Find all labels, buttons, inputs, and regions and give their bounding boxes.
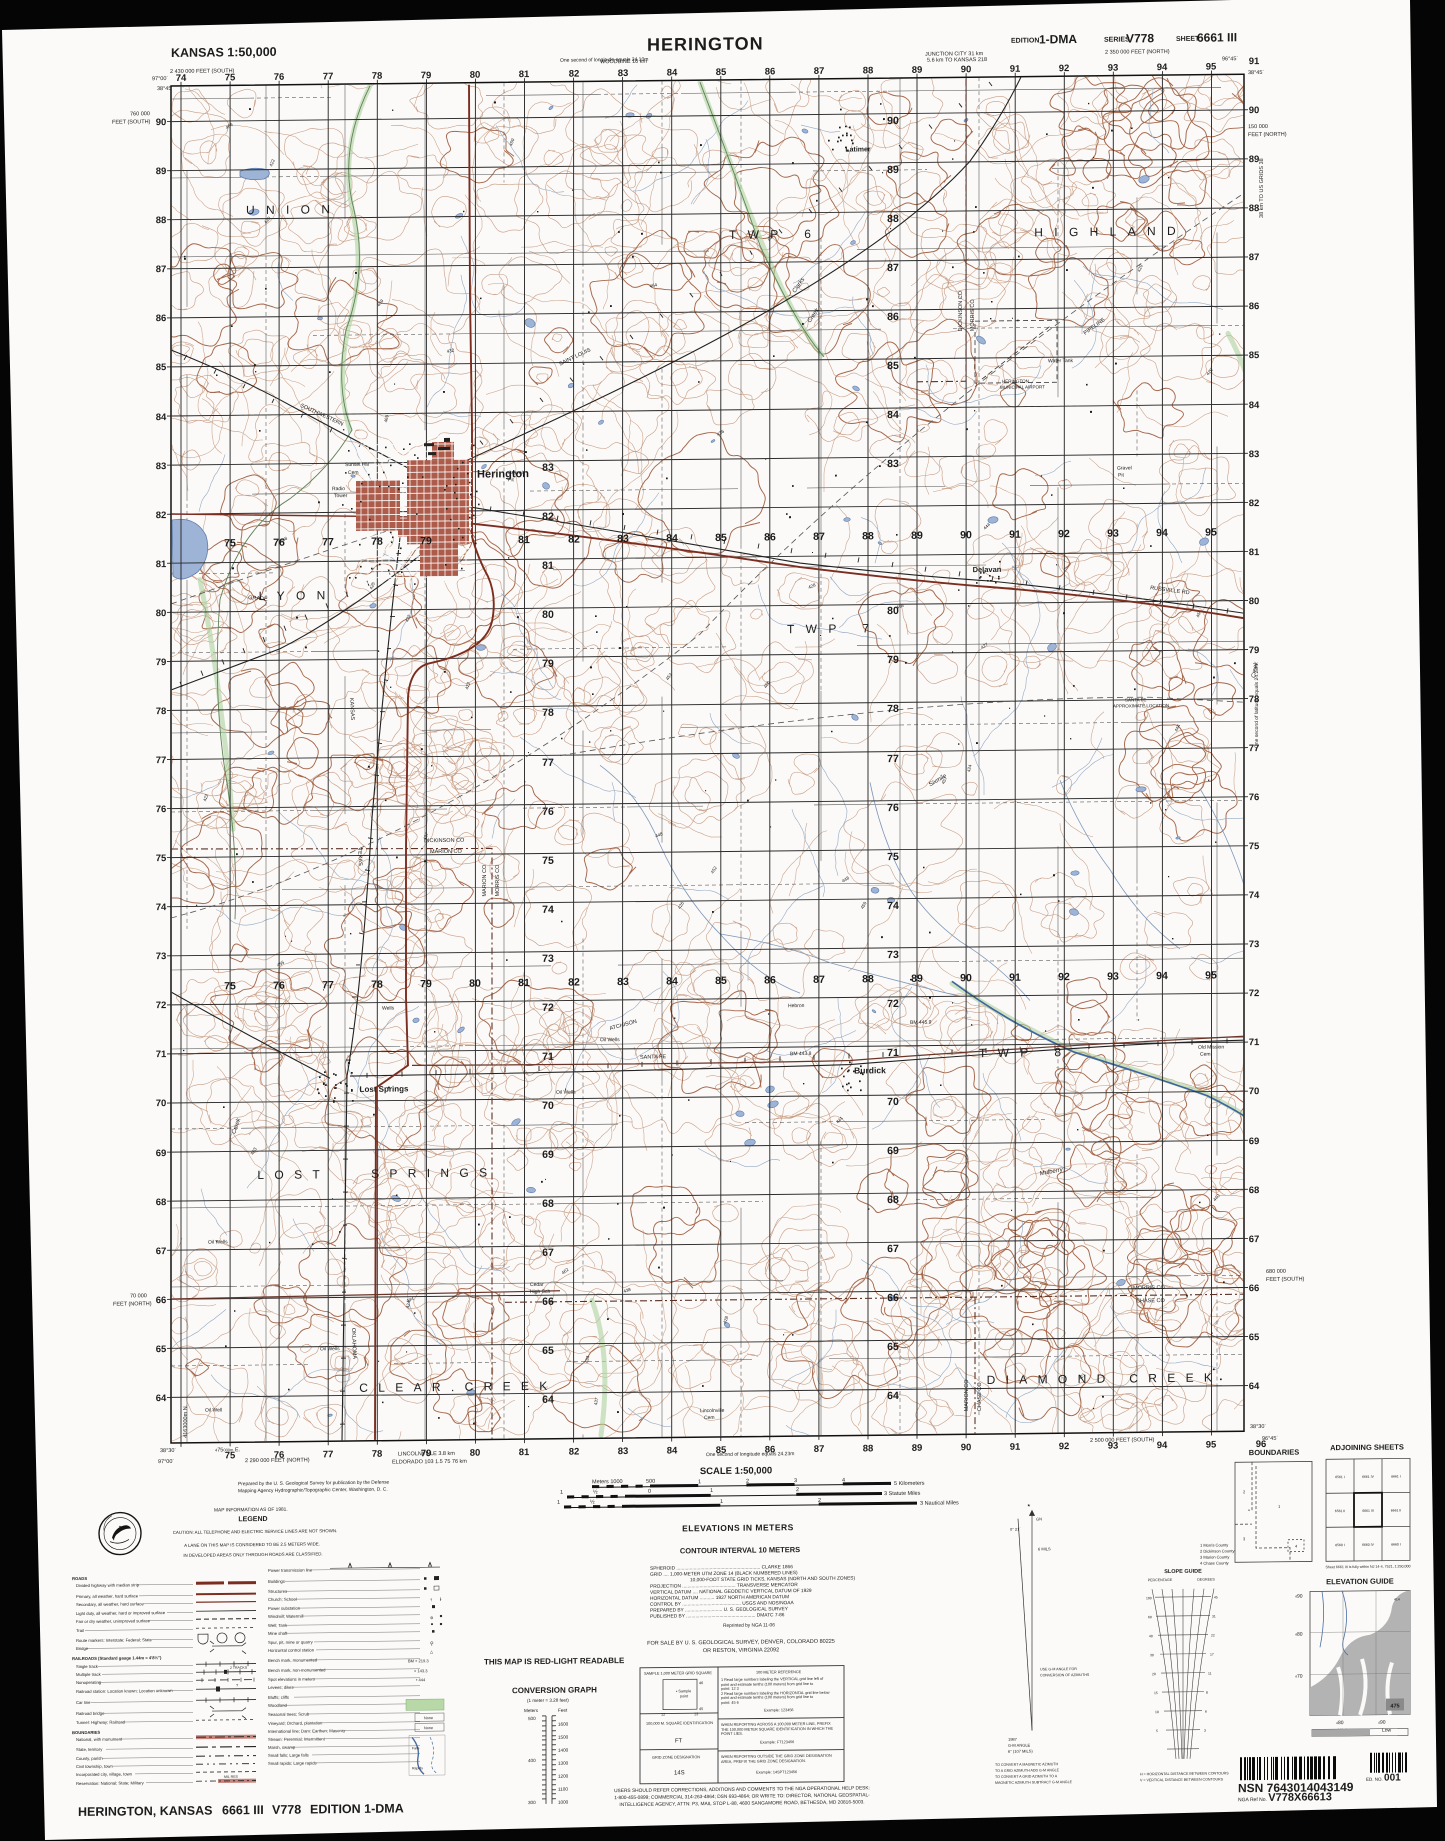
- svg-text:93: 93: [1107, 971, 1119, 983]
- svg-text:72: 72: [156, 1000, 167, 1011]
- svg-text:71: 71: [156, 1049, 167, 1060]
- svg-text:ROADS: ROADS: [72, 1576, 87, 1581]
- svg-text:8: 8: [1206, 1691, 1208, 1695]
- svg-text:91: 91: [1009, 972, 1021, 984]
- svg-text:96°45´: 96°45´: [1262, 1436, 1278, 1442]
- svg-text:APPROXIMATE LOCATION: APPROXIMATE LOCATION: [1113, 703, 1169, 709]
- svg-text:77: 77: [323, 71, 334, 82]
- svg-text:15: 15: [1154, 1691, 1158, 1695]
- svg-text:80: 80: [1249, 596, 1260, 607]
- svg-text:6661 I: 6661 I: [1391, 1474, 1400, 1478]
- svg-text:Levees; dikes: Levees; dikes: [268, 1685, 294, 1690]
- svg-text:90: 90: [887, 115, 899, 127]
- svg-text:⚲: ⚲: [430, 1641, 434, 1647]
- svg-text:Pit: Pit: [508, 477, 514, 483]
- svg-text:SCALE 1:50,000: SCALE 1:50,000: [700, 1465, 772, 1477]
- svg-text:88: 88: [863, 1443, 874, 1454]
- svg-text:76: 76: [1249, 792, 1260, 803]
- svg-text:County, parish: County, parish: [76, 1756, 103, 1761]
- svg-text:38°45´: 38°45´: [1248, 70, 1264, 76]
- svg-text:Primary, all weather, hard sur: Primary, all weather, hard surface: [76, 1593, 139, 1599]
- svg-text:FT: FT: [675, 1738, 683, 1744]
- svg-text:1 Morris County: 1 Morris County: [1200, 1542, 1228, 1547]
- svg-text:87: 87: [814, 66, 825, 77]
- svg-text:High Sch: High Sch: [530, 1289, 551, 1295]
- svg-text:U N I O N: U N I O N: [246, 202, 334, 217]
- svg-text:69: 69: [542, 1149, 554, 1161]
- svg-text:86: 86: [764, 531, 776, 543]
- svg-text:89: 89: [912, 65, 923, 76]
- svg-text:Civil township, town: Civil township, town: [76, 1764, 113, 1769]
- svg-text:2 Dickinson County: 2 Dickinson County: [1200, 1548, 1234, 1553]
- svg-text:TO CONVERT A GRID AZIMUTH TO A: TO CONVERT A GRID AZIMUTH TO A: [995, 1774, 1058, 1779]
- svg-text:85: 85: [156, 362, 167, 373]
- svg-text:Oil Wells: Oil Wells: [208, 1239, 228, 1245]
- svg-text:DEGREES: DEGREES: [1197, 1578, 1215, 1582]
- svg-text:81: 81: [519, 69, 530, 80]
- svg-text:PERCENTAGE: PERCENTAGE: [1148, 1578, 1173, 1582]
- svg-text:Delavan: Delavan: [973, 565, 1002, 574]
- svg-text:75: 75: [887, 851, 899, 863]
- svg-text:30: 30: [1150, 1653, 1154, 1657]
- svg-text:DICKINSON CO: DICKINSON CO: [958, 290, 964, 331]
- svg-text:760 000: 760 000: [130, 111, 150, 117]
- svg-text:76: 76: [273, 537, 285, 549]
- svg-text:point: point: [680, 1694, 689, 1698]
- svg-text:D I A M O N D C R E E K: D I A M O N D C R E E K: [987, 1371, 1216, 1388]
- svg-text:Radio: Radio: [332, 486, 345, 492]
- svg-text:94: 94: [1156, 527, 1168, 539]
- svg-text:1300: 1300: [558, 1761, 569, 1766]
- svg-text:KANSAS: KANSAS: [348, 698, 355, 721]
- svg-text:10: 10: [1155, 1710, 1159, 1714]
- svg-text:67: 67: [1249, 1234, 1260, 1245]
- svg-text:96°45´: 96°45´: [1222, 56, 1238, 62]
- svg-text:1100: 1100: [558, 1787, 568, 1792]
- svg-text:2 290 000 FEET (NORTH): 2 290 000 FEET (NORTH): [245, 1457, 310, 1464]
- svg-text:86: 86: [764, 974, 776, 986]
- svg-text:85: 85: [887, 360, 899, 372]
- svg-text:100: 100: [1146, 1596, 1152, 1600]
- svg-text:International line; Dam: Earth: International line; Dam: Earthen; Masonr…: [268, 1728, 346, 1734]
- svg-text:KANSAS 1:50,000: KANSAS 1:50,000: [171, 45, 277, 60]
- svg-text:76: 76: [156, 804, 167, 815]
- svg-text:MIL RES: MIL RES: [224, 1775, 239, 1779]
- svg-text:79: 79: [542, 658, 554, 670]
- svg-text:One second of latitude equals: One second of latitude equals 24.23m: [1254, 664, 1260, 748]
- svg-text:Rapids: Rapids: [412, 1766, 423, 1770]
- svg-text:73: 73: [542, 953, 554, 965]
- svg-text:45: 45: [699, 1707, 703, 1711]
- svg-text:84: 84: [1249, 400, 1260, 411]
- svg-text:CHASE CO: CHASE CO: [977, 1382, 983, 1412]
- svg-text:60: 60: [1148, 1615, 1152, 1619]
- svg-text:Seasonal trees; Scrub: Seasonal trees; Scrub: [268, 1711, 310, 1716]
- svg-text:BOUNDARIES: BOUNDARIES: [72, 1730, 100, 1735]
- svg-text:69: 69: [1249, 1136, 1260, 1147]
- svg-text:L Y O N: L Y O N: [259, 588, 330, 603]
- svg-text:83: 83: [887, 458, 899, 470]
- svg-text:88: 88: [1249, 203, 1260, 214]
- svg-text:Church; School: Church; School: [268, 1597, 297, 1602]
- svg-text:91: 91: [1009, 529, 1021, 541]
- svg-text:MARION CO: MARION CO: [482, 864, 488, 897]
- svg-text:150 000: 150 000: [1248, 124, 1268, 130]
- svg-text:65: 65: [887, 1341, 899, 1353]
- svg-text:(1 meter = 3.28 feet): (1 meter = 3.28 feet): [527, 1698, 569, 1703]
- svg-text:Divided highway with median st: Divided highway with median strip: [76, 1582, 140, 1588]
- svg-text:★: ★: [119, 1525, 122, 1529]
- svg-text:80: 80: [470, 70, 481, 81]
- svg-text:79: 79: [156, 657, 167, 668]
- svg-text:4 Chase County: 4 Chase County: [1200, 1560, 1229, 1565]
- svg-text:Multiple track: Multiple track: [76, 1672, 102, 1677]
- svg-text:84: 84: [156, 412, 167, 423]
- svg-text:MORRIS CO: MORRIS CO: [1133, 1285, 1165, 1291]
- svg-text:75: 75: [224, 980, 236, 992]
- svg-text:77: 77: [322, 979, 334, 991]
- svg-text:Single track: Single track: [76, 1664, 99, 1669]
- svg-text:Light duty, all weather, hard: Light duty, all weather, hard or improve…: [76, 1610, 166, 1616]
- svg-text:1-DMA: 1-DMA: [1039, 32, 1077, 46]
- svg-text:84: 84: [666, 532, 678, 544]
- svg-text:83: 83: [542, 462, 554, 474]
- svg-text:89: 89: [912, 1443, 923, 1454]
- svg-text:480: 480: [1336, 1720, 1344, 1726]
- svg-text:• Sample: • Sample: [676, 1689, 691, 1693]
- svg-text:FEET (NORTH): FEET (NORTH): [113, 1301, 152, 1307]
- svg-text:1200: 1200: [558, 1774, 569, 1779]
- svg-text:Reprinted by NGA 11-06: Reprinted by NGA 11-06: [723, 1622, 775, 1629]
- svg-text:84: 84: [667, 1445, 678, 1456]
- svg-text:73: 73: [1249, 939, 1260, 950]
- svg-text:38°45´: 38°45´: [157, 86, 173, 92]
- svg-text:ADJOINING SHEETS: ADJOINING SHEETS: [1330, 1442, 1404, 1452]
- svg-text:TO CONVERT A MAGNETIC AZIMUTH: TO CONVERT A MAGNETIC AZIMUTH: [995, 1762, 1059, 1767]
- svg-text:★: ★: [1027, 1503, 1031, 1508]
- svg-text:6 MILS: 6 MILS: [1038, 1546, 1051, 1551]
- svg-text:3 Nautical Miles: 3 Nautical Miles: [920, 1500, 959, 1506]
- svg-text:71: 71: [887, 1047, 899, 1059]
- svg-text:Structures: Structures: [268, 1589, 287, 1594]
- svg-text:2: 2: [746, 1479, 749, 1485]
- svg-text:87: 87: [813, 974, 825, 986]
- svg-text:0° 21´: 0° 21´: [1010, 1527, 1021, 1532]
- svg-text:Route markers: Interstate; Fed: Route markers: Interstate; Federal; Stat…: [76, 1637, 153, 1643]
- svg-text:490: 490: [1378, 1720, 1386, 1726]
- svg-text:90: 90: [961, 1442, 972, 1453]
- svg-text:†: †: [430, 1597, 432, 1602]
- svg-text:74: 74: [156, 902, 167, 913]
- svg-text:67: 67: [542, 1247, 554, 1259]
- svg-text:3 Statute Miles: 3 Statute Miles: [884, 1491, 921, 1497]
- svg-text:6561 I: 6561 I: [1335, 1475, 1344, 1479]
- svg-text:500: 500: [528, 1716, 536, 1721]
- svg-text:92: 92: [1058, 528, 1070, 540]
- svg-text:76: 76: [274, 72, 285, 83]
- svg-text:75: 75: [542, 855, 554, 867]
- svg-text:82: 82: [542, 511, 554, 523]
- svg-text:FEET (SOUTH): FEET (SOUTH): [1266, 1277, 1305, 1283]
- svg-text:72: 72: [1249, 988, 1260, 999]
- svg-text:L O S T S P R I N G S: L O S T S P R I N G S: [257, 1165, 490, 1182]
- svg-text:Spot elevations in meters: Spot elevations in meters: [268, 1676, 315, 1682]
- svg-text:82: 82: [156, 510, 167, 521]
- svg-text:Tunnel: Highway; Railroad: Tunnel: Highway; Railroad: [76, 1719, 126, 1725]
- svg-text:77: 77: [323, 1449, 334, 1460]
- svg-text:1600: 1600: [558, 1722, 569, 1727]
- svg-text:70: 70: [156, 1098, 167, 1109]
- svg-text:Water Tank: Water Tank: [1048, 358, 1074, 364]
- svg-text:5: 5: [1156, 1729, 1158, 1733]
- svg-text:40: 40: [1149, 1634, 1153, 1638]
- svg-text:EDITION 1-DMA: EDITION 1-DMA: [310, 1801, 404, 1816]
- svg-text:100,000 M. SQUARE IDENTIFICATI: 100,000 M. SQUARE IDENTIFICATION: [646, 1721, 713, 1726]
- svg-text:2 TRACKS: 2 TRACKS: [230, 1666, 248, 1670]
- svg-text:680 000: 680 000: [1266, 1269, 1286, 1275]
- svg-text:93: 93: [1108, 63, 1119, 74]
- svg-text:68: 68: [542, 1198, 554, 1210]
- svg-text:90: 90: [1249, 105, 1260, 116]
- svg-text:81: 81: [542, 560, 554, 572]
- svg-text:3: 3: [1204, 1729, 1206, 1733]
- svg-text:Oil Wells: Oil Wells: [600, 1037, 620, 1043]
- svg-text:CONVERSION GRAPH: CONVERSION GRAPH: [512, 1685, 597, 1695]
- svg-text:H I G H L A N D: H I G H L A N D: [1034, 224, 1179, 240]
- svg-text:92: 92: [1059, 63, 1070, 74]
- svg-text:90: 90: [961, 64, 972, 75]
- svg-text:T W P 6: T W P 6: [729, 227, 815, 242]
- svg-text:81: 81: [519, 1447, 530, 1458]
- svg-text:6° (107 MILS): 6° (107 MILS): [1008, 1749, 1033, 1754]
- svg-text:77: 77: [322, 536, 334, 548]
- svg-text:1: 1: [560, 1490, 563, 1496]
- svg-text:88: 88: [862, 530, 874, 542]
- svg-text:OKLAHOMA: OKLAHOMA: [350, 1328, 357, 1360]
- svg-text:BM 443.8: BM 443.8: [790, 1051, 812, 1057]
- svg-text:1: 1: [710, 1488, 713, 1494]
- svg-text:BM × 219.3: BM × 219.3: [408, 1658, 429, 1663]
- svg-text:½: ½: [593, 1488, 598, 1495]
- svg-text:84: 84: [666, 975, 678, 987]
- svg-text:Burdick: Burdick: [854, 1065, 886, 1075]
- svg-text:Power transmission line: Power transmission line: [268, 1567, 313, 1572]
- svg-text:66: 66: [887, 1292, 899, 1304]
- svg-text:5.6 km TO KANSAS 218: 5.6 km TO KANSAS 218: [927, 57, 987, 64]
- svg-text:87: 87: [813, 531, 825, 543]
- svg-text:LEGEND: LEGEND: [238, 1516, 267, 1523]
- svg-text:Mine shaft: Mine shaft: [268, 1631, 288, 1636]
- svg-text:81: 81: [518, 534, 530, 546]
- svg-text:Secondary, all weather, hard s: Secondary, all weather, hard surface: [76, 1601, 144, 1607]
- svg-text:Spur, pit, mine or quarry: Spur, pit, mine or quarry: [268, 1639, 314, 1645]
- svg-text:GN: GN: [1036, 1516, 1042, 1521]
- svg-text:73: 73: [887, 949, 899, 961]
- svg-text:None: None: [424, 1716, 433, 1720]
- svg-text:46: 46: [699, 1681, 703, 1685]
- svg-text:69: 69: [887, 1145, 899, 1157]
- svg-text:ELEVATION GUIDE: ELEVATION GUIDE: [1326, 1577, 1394, 1587]
- svg-text:Gravel: Gravel: [508, 470, 523, 476]
- svg-text:Sunset Hill: Sunset Hill: [345, 462, 369, 468]
- svg-text:Cem: Cem: [348, 470, 359, 476]
- svg-text:88: 88: [862, 973, 874, 985]
- svg-text:89: 89: [1249, 154, 1260, 165]
- svg-text:89: 89: [911, 530, 923, 542]
- svg-text:72: 72: [542, 1002, 554, 1014]
- svg-text:Lost Springs: Lost Springs: [360, 1084, 409, 1094]
- svg-text:66: 66: [156, 1295, 167, 1306]
- svg-text:65: 65: [542, 1345, 554, 1357]
- svg-text:95: 95: [1206, 1439, 1217, 1450]
- svg-text:64: 64: [1249, 1381, 1260, 1392]
- svg-text:80: 80: [470, 1448, 481, 1459]
- svg-text:One second of longitude equals: One second of longitude equals 24.23m: [706, 1451, 794, 1458]
- svg-text:91: 91: [1010, 1442, 1021, 1453]
- svg-text:0: 0: [648, 1489, 651, 1495]
- svg-text:BOUNDARIES: BOUNDARIES: [1249, 1448, 1299, 1458]
- svg-text:80: 80: [156, 608, 167, 619]
- svg-text:6: 6: [1205, 1710, 1207, 1714]
- svg-text:12: 12: [661, 1713, 665, 1717]
- svg-text:475: 475: [1390, 1703, 1399, 1709]
- svg-text:Trail: Trail: [76, 1628, 84, 1633]
- svg-text:75: 75: [156, 853, 167, 864]
- svg-text:87: 87: [887, 262, 899, 274]
- svg-text:83: 83: [617, 533, 629, 545]
- svg-text:HERINGTON, KANSAS: HERINGTON, KANSAS: [78, 1804, 213, 1819]
- svg-text:14S: 14S: [674, 1770, 685, 1776]
- svg-text:67: 67: [156, 1246, 167, 1257]
- svg-text:64: 64: [887, 1390, 899, 1402]
- svg-text:Example: 123456: Example: 123456: [764, 1708, 794, 1712]
- svg-text:Oil Well: Oil Well: [205, 1407, 222, 1413]
- svg-text:78: 78: [156, 706, 167, 717]
- svg-text:Oil Wells: Oil Wells: [320, 1346, 340, 1352]
- svg-text:CHASE CO: CHASE CO: [1136, 1298, 1165, 1304]
- svg-text:Vineyard; Orchard, plantation: Vineyard; Orchard, plantation: [268, 1720, 323, 1726]
- svg-text:69: 69: [156, 1148, 167, 1159]
- svg-text:70: 70: [542, 1100, 554, 1112]
- svg-text:EDITION: EDITION: [1011, 37, 1039, 44]
- svg-text:79: 79: [1249, 645, 1260, 656]
- svg-text:6661 III: 6661 III: [1362, 1509, 1373, 1513]
- svg-text:Power substation: Power substation: [268, 1606, 301, 1611]
- svg-text:CONTOUR INTERVAL 10 METERS: CONTOUR INTERVAL 10 METERS: [680, 1545, 800, 1555]
- svg-text:Well; Tank: Well; Tank: [268, 1623, 288, 1628]
- svg-text:Reservation: National; State;: Reservation: National; State; Military: [76, 1780, 145, 1786]
- svg-text:70: 70: [887, 1096, 899, 1108]
- svg-text:1500: 1500: [558, 1735, 569, 1740]
- svg-text:22: 22: [1211, 1634, 1215, 1638]
- svg-text:TO A GRID AZIMUTH ADD G-M ANGL: TO A GRID AZIMUTH ADD G-M ANGLE: [995, 1768, 1060, 1773]
- svg-text:MUNICIPAL AIRPORT: MUNICIPAL AIRPORT: [1000, 384, 1045, 389]
- svg-text:OR RESTON, VIRGINIA 22092: OR RESTON, VIRGINIA 22092: [703, 1647, 779, 1654]
- svg-text:Cem: Cem: [1200, 1052, 1211, 1058]
- svg-text:5 Kilometers: 5 Kilometers: [894, 1481, 925, 1487]
- svg-text:Car line: Car line: [76, 1700, 91, 1705]
- svg-text:64: 64: [156, 1393, 167, 1404]
- svg-text:Bluffs; cliffs: Bluffs; cliffs: [268, 1695, 289, 1700]
- svg-text:84: 84: [887, 409, 899, 421]
- svg-text:81: 81: [518, 977, 530, 989]
- svg-text:83: 83: [617, 976, 629, 988]
- svg-text:BM 445.9: BM 445.9: [910, 1020, 932, 1026]
- svg-text:FEET (NORTH): FEET (NORTH): [1248, 132, 1287, 138]
- svg-text:POINT LIES.: POINT LIES.: [721, 1732, 743, 1736]
- svg-text:89: 89: [887, 164, 899, 176]
- svg-text:Old Mission: Old Mission: [1198, 1044, 1224, 1050]
- svg-text:Oil Wells: Oil Wells: [556, 1090, 576, 1096]
- svg-text:6661 II: 6661 II: [1391, 1508, 1401, 1512]
- svg-text:point: 45 6: point: 45 6: [721, 1701, 739, 1705]
- svg-text:4163000m N.: 4163000m N.: [183, 1404, 189, 1438]
- svg-text:Incorporated city, village, to: Incorporated city, village, town: [76, 1771, 133, 1777]
- svg-text:Buildings: Buildings: [268, 1579, 285, 1584]
- svg-text:78: 78: [887, 703, 899, 715]
- svg-text:× 143.3: × 143.3: [414, 1668, 428, 1673]
- svg-text:SAMPLE 1,000 METER GRID SQUARE: SAMPLE 1,000 METER GRID SQUARE: [644, 1671, 712, 1676]
- svg-text:78: 78: [542, 707, 554, 719]
- svg-text:National, with monument: National, with monument: [76, 1737, 123, 1743]
- svg-text:86: 86: [1249, 301, 1260, 312]
- svg-text:Fair or dry weather, unimprove: Fair or dry weather, unimproved surface: [76, 1618, 151, 1624]
- svg-text:78: 78: [371, 979, 383, 991]
- svg-text:LINCOLNVILLE 3.8 km: LINCOLNVILLE 3.8 km: [398, 1451, 455, 1458]
- svg-text:ELEVATIONS IN METERS: ELEVATIONS IN METERS: [682, 1522, 794, 1533]
- svg-text:73: 73: [156, 951, 167, 962]
- svg-text:70: 70: [1249, 1086, 1260, 1097]
- svg-text:90: 90: [156, 117, 167, 128]
- svg-text:95: 95: [1205, 526, 1217, 538]
- svg-text:83: 83: [156, 461, 167, 472]
- svg-text:MORRIS CO: MORRIS CO: [495, 864, 501, 897]
- svg-text:86: 86: [887, 311, 899, 323]
- svg-text:89: 89: [156, 166, 167, 177]
- svg-text:79: 79: [420, 535, 432, 547]
- svg-text:None: None: [424, 1726, 433, 1730]
- svg-text:2: 2: [796, 1487, 799, 1493]
- svg-text:Cem: Cem: [704, 1415, 715, 1421]
- svg-text:Bridge: Bridge: [76, 1646, 89, 1651]
- svg-text:11: 11: [1208, 1672, 1212, 1676]
- svg-text:79: 79: [420, 978, 432, 990]
- svg-text:6561 II: 6561 II: [1335, 1509, 1345, 1513]
- svg-text:USE G-M ANGLE FOR: USE G-M ANGLE FOR: [1040, 1667, 1077, 1671]
- svg-text:4: 4: [842, 1478, 845, 1484]
- svg-text:38 km TO US GRIDS 38: 38 km TO US GRIDS 38: [1259, 158, 1265, 218]
- svg-text:Railroad bridge: Railroad bridge: [76, 1711, 105, 1716]
- svg-text:83: 83: [1249, 449, 1260, 460]
- svg-text:One second of longitude equals: One second of longitude equals 24.10m: [560, 57, 648, 64]
- svg-text:90: 90: [960, 972, 972, 984]
- svg-text:82: 82: [1249, 498, 1260, 509]
- svg-text:92: 92: [1058, 971, 1070, 983]
- svg-text:2: 2: [818, 1498, 821, 1504]
- svg-text:72: 72: [887, 998, 899, 1010]
- svg-text:95: 95: [1205, 969, 1217, 981]
- svg-text:Horizontal control station: Horizontal control station: [268, 1647, 315, 1653]
- svg-text:13: 13: [694, 1712, 698, 1716]
- svg-text:78: 78: [372, 71, 383, 82]
- svg-text:84: 84: [667, 67, 678, 78]
- svg-text:78: 78: [371, 536, 383, 548]
- svg-text:82: 82: [568, 977, 580, 989]
- svg-text:470: 470: [1295, 1674, 1303, 1680]
- svg-text:Small rapids; Large rapids: Small rapids; Large rapids: [268, 1760, 317, 1766]
- svg-text:HERINGTON: HERINGTON: [647, 33, 764, 54]
- svg-text:85: 85: [716, 67, 727, 78]
